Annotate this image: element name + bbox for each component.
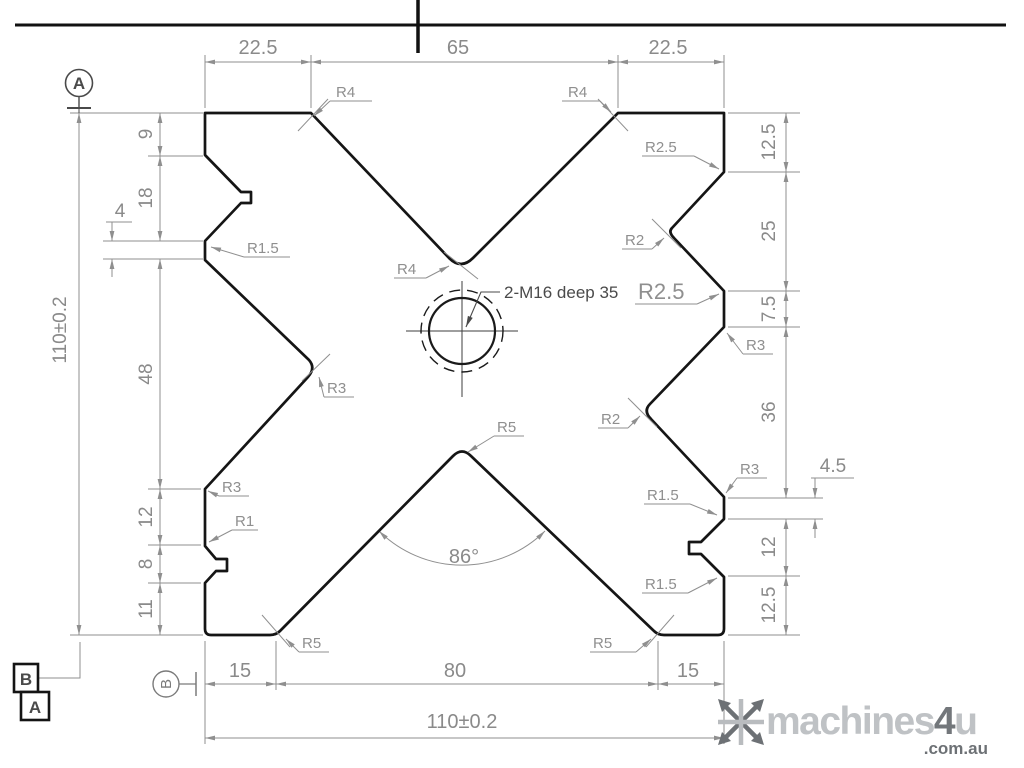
dim-label: 22.5 <box>239 37 278 59</box>
radius-label: R4 <box>397 261 416 278</box>
radius-label: R3 <box>746 337 765 354</box>
angle-label: 86° <box>449 546 479 568</box>
overall-dim-label: 110±0.2 <box>50 296 71 363</box>
dim-label: 4 <box>115 201 126 222</box>
extension-lines <box>70 55 823 744</box>
radius-label: R3 <box>222 479 241 496</box>
dimension-lines <box>79 62 854 738</box>
datum-a-circle-symbol: A <box>66 70 93 114</box>
radius-label: R2.5 <box>645 139 677 156</box>
logo-domain: .com.au <box>924 739 988 758</box>
dimension-labels: 22.5 65 22.5 9 18 4 48 12 8 11 110±0.2 1… <box>50 37 846 733</box>
engineering-drawing: 22.5 65 22.5 9 18 4 48 12 8 11 110±0.2 1… <box>0 0 1024 768</box>
dim-label: 18 <box>136 187 157 208</box>
radius-label: R4 <box>568 84 587 101</box>
dim-label: 15 <box>677 660 699 682</box>
dim-label: 48 <box>136 363 157 384</box>
dim-label: 36 <box>759 401 780 422</box>
radius-label: R3 <box>327 380 346 397</box>
dim-label: 65 <box>447 37 469 59</box>
radius-label: R1.5 <box>247 240 279 257</box>
dim-label: 11 <box>136 599 157 619</box>
dim-label: 8 <box>136 559 157 570</box>
dim-label: 15 <box>229 660 251 682</box>
radius-label: R5 <box>497 419 516 436</box>
logo-wordmark: machines4u <box>766 700 976 743</box>
datum-frame-b-letter: B <box>20 670 32 689</box>
datum-frame-b: B <box>14 642 80 692</box>
radius-label: R1 <box>235 513 254 530</box>
tapped-hole <box>406 281 518 397</box>
radius-leaders <box>208 99 773 652</box>
radius-label: R3 <box>740 461 759 478</box>
sheet-border-lines <box>15 0 1006 53</box>
datum-b-circle-symbol: B <box>153 671 196 697</box>
dim-label: 12 <box>759 536 780 557</box>
dim-label: 9 <box>136 129 157 140</box>
dim-label: 12 <box>136 506 157 527</box>
dim-label: 12.5 <box>759 124 780 161</box>
radius-label: R2.5 <box>638 279 684 304</box>
datum-symbols: A B B A <box>14 70 196 721</box>
radius-label: R5 <box>302 635 321 652</box>
dim-label: 7.5 <box>759 296 780 322</box>
dim-label: 25 <box>759 220 780 241</box>
radius-label: R2 <box>625 232 644 249</box>
dim-label: 22.5 <box>649 37 688 59</box>
datum-frame-a: A <box>21 692 49 720</box>
dim-label: 12.5 <box>759 587 780 624</box>
radius-label: R4 <box>336 84 355 101</box>
asterisk-icon <box>718 699 764 745</box>
hole-note-leader <box>466 292 500 327</box>
radius-label: R1.5 <box>645 576 677 593</box>
cad-drawing-page: 22.5 65 22.5 9 18 4 48 12 8 11 110±0.2 1… <box>0 0 1024 768</box>
radius-label: R5 <box>593 635 612 652</box>
dim-label: 80 <box>444 660 466 682</box>
datum-frame-a-letter: A <box>29 698 41 717</box>
datum-a-letter: A <box>73 74 85 93</box>
machines4u-logo: machines4u .com.au <box>718 699 988 758</box>
datum-b-letter: B <box>158 679 175 689</box>
dim-label: 4.5 <box>820 456 846 477</box>
radius-label: R2 <box>601 411 620 428</box>
overall-dim-label: 110±0.2 <box>427 711 498 733</box>
radius-label: R1.5 <box>647 487 679 504</box>
hole-note: 2-M16 deep 35 <box>504 283 618 302</box>
